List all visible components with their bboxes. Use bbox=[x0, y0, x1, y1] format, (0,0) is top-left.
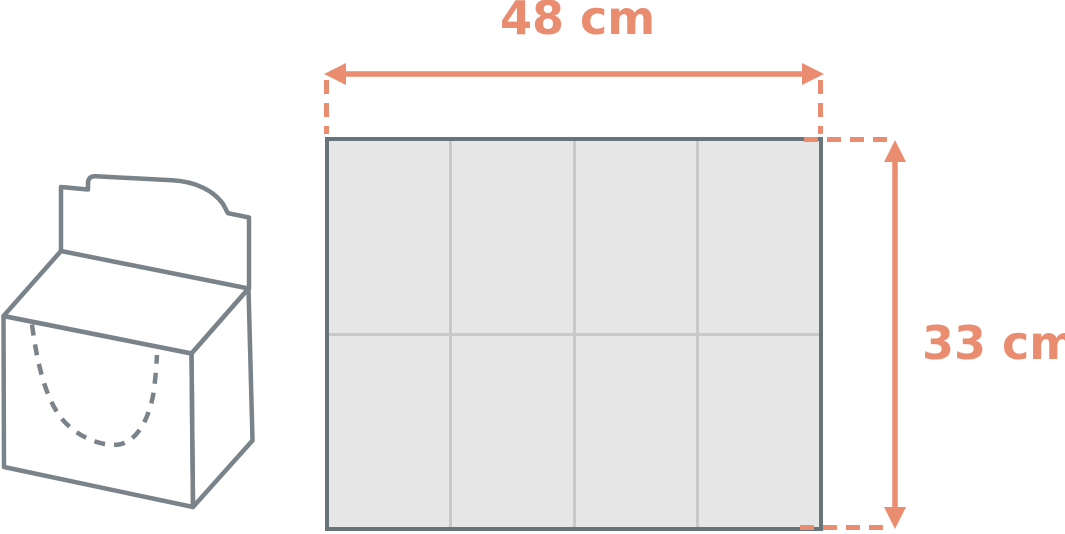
grid-cell bbox=[699, 336, 819, 528]
grid-cell bbox=[699, 141, 819, 333]
box-top-face bbox=[4, 251, 249, 354]
width-arrowhead-left-icon bbox=[324, 63, 346, 85]
height-arrowhead-bottom-icon bbox=[884, 507, 906, 529]
grid-cell bbox=[576, 336, 696, 528]
grid-cell bbox=[452, 141, 572, 333]
grid-cell bbox=[329, 336, 449, 528]
grid-cell bbox=[452, 336, 572, 528]
box-front-face bbox=[4, 316, 194, 507]
height-arrowhead-top-icon bbox=[884, 140, 906, 162]
width-dimension-label: 48 cm bbox=[500, 0, 650, 42]
grid-cell bbox=[576, 141, 696, 333]
dispenser-box-icon bbox=[0, 0, 300, 534]
box-right-face bbox=[192, 289, 253, 508]
grid-cell bbox=[329, 141, 449, 333]
height-dimension-label: 33 cm bbox=[922, 319, 1065, 367]
measurement-diagram: 48 cm 33 cm bbox=[0, 0, 1065, 534]
sheet-grid bbox=[325, 137, 823, 531]
width-arrowhead-right-icon bbox=[802, 63, 824, 85]
